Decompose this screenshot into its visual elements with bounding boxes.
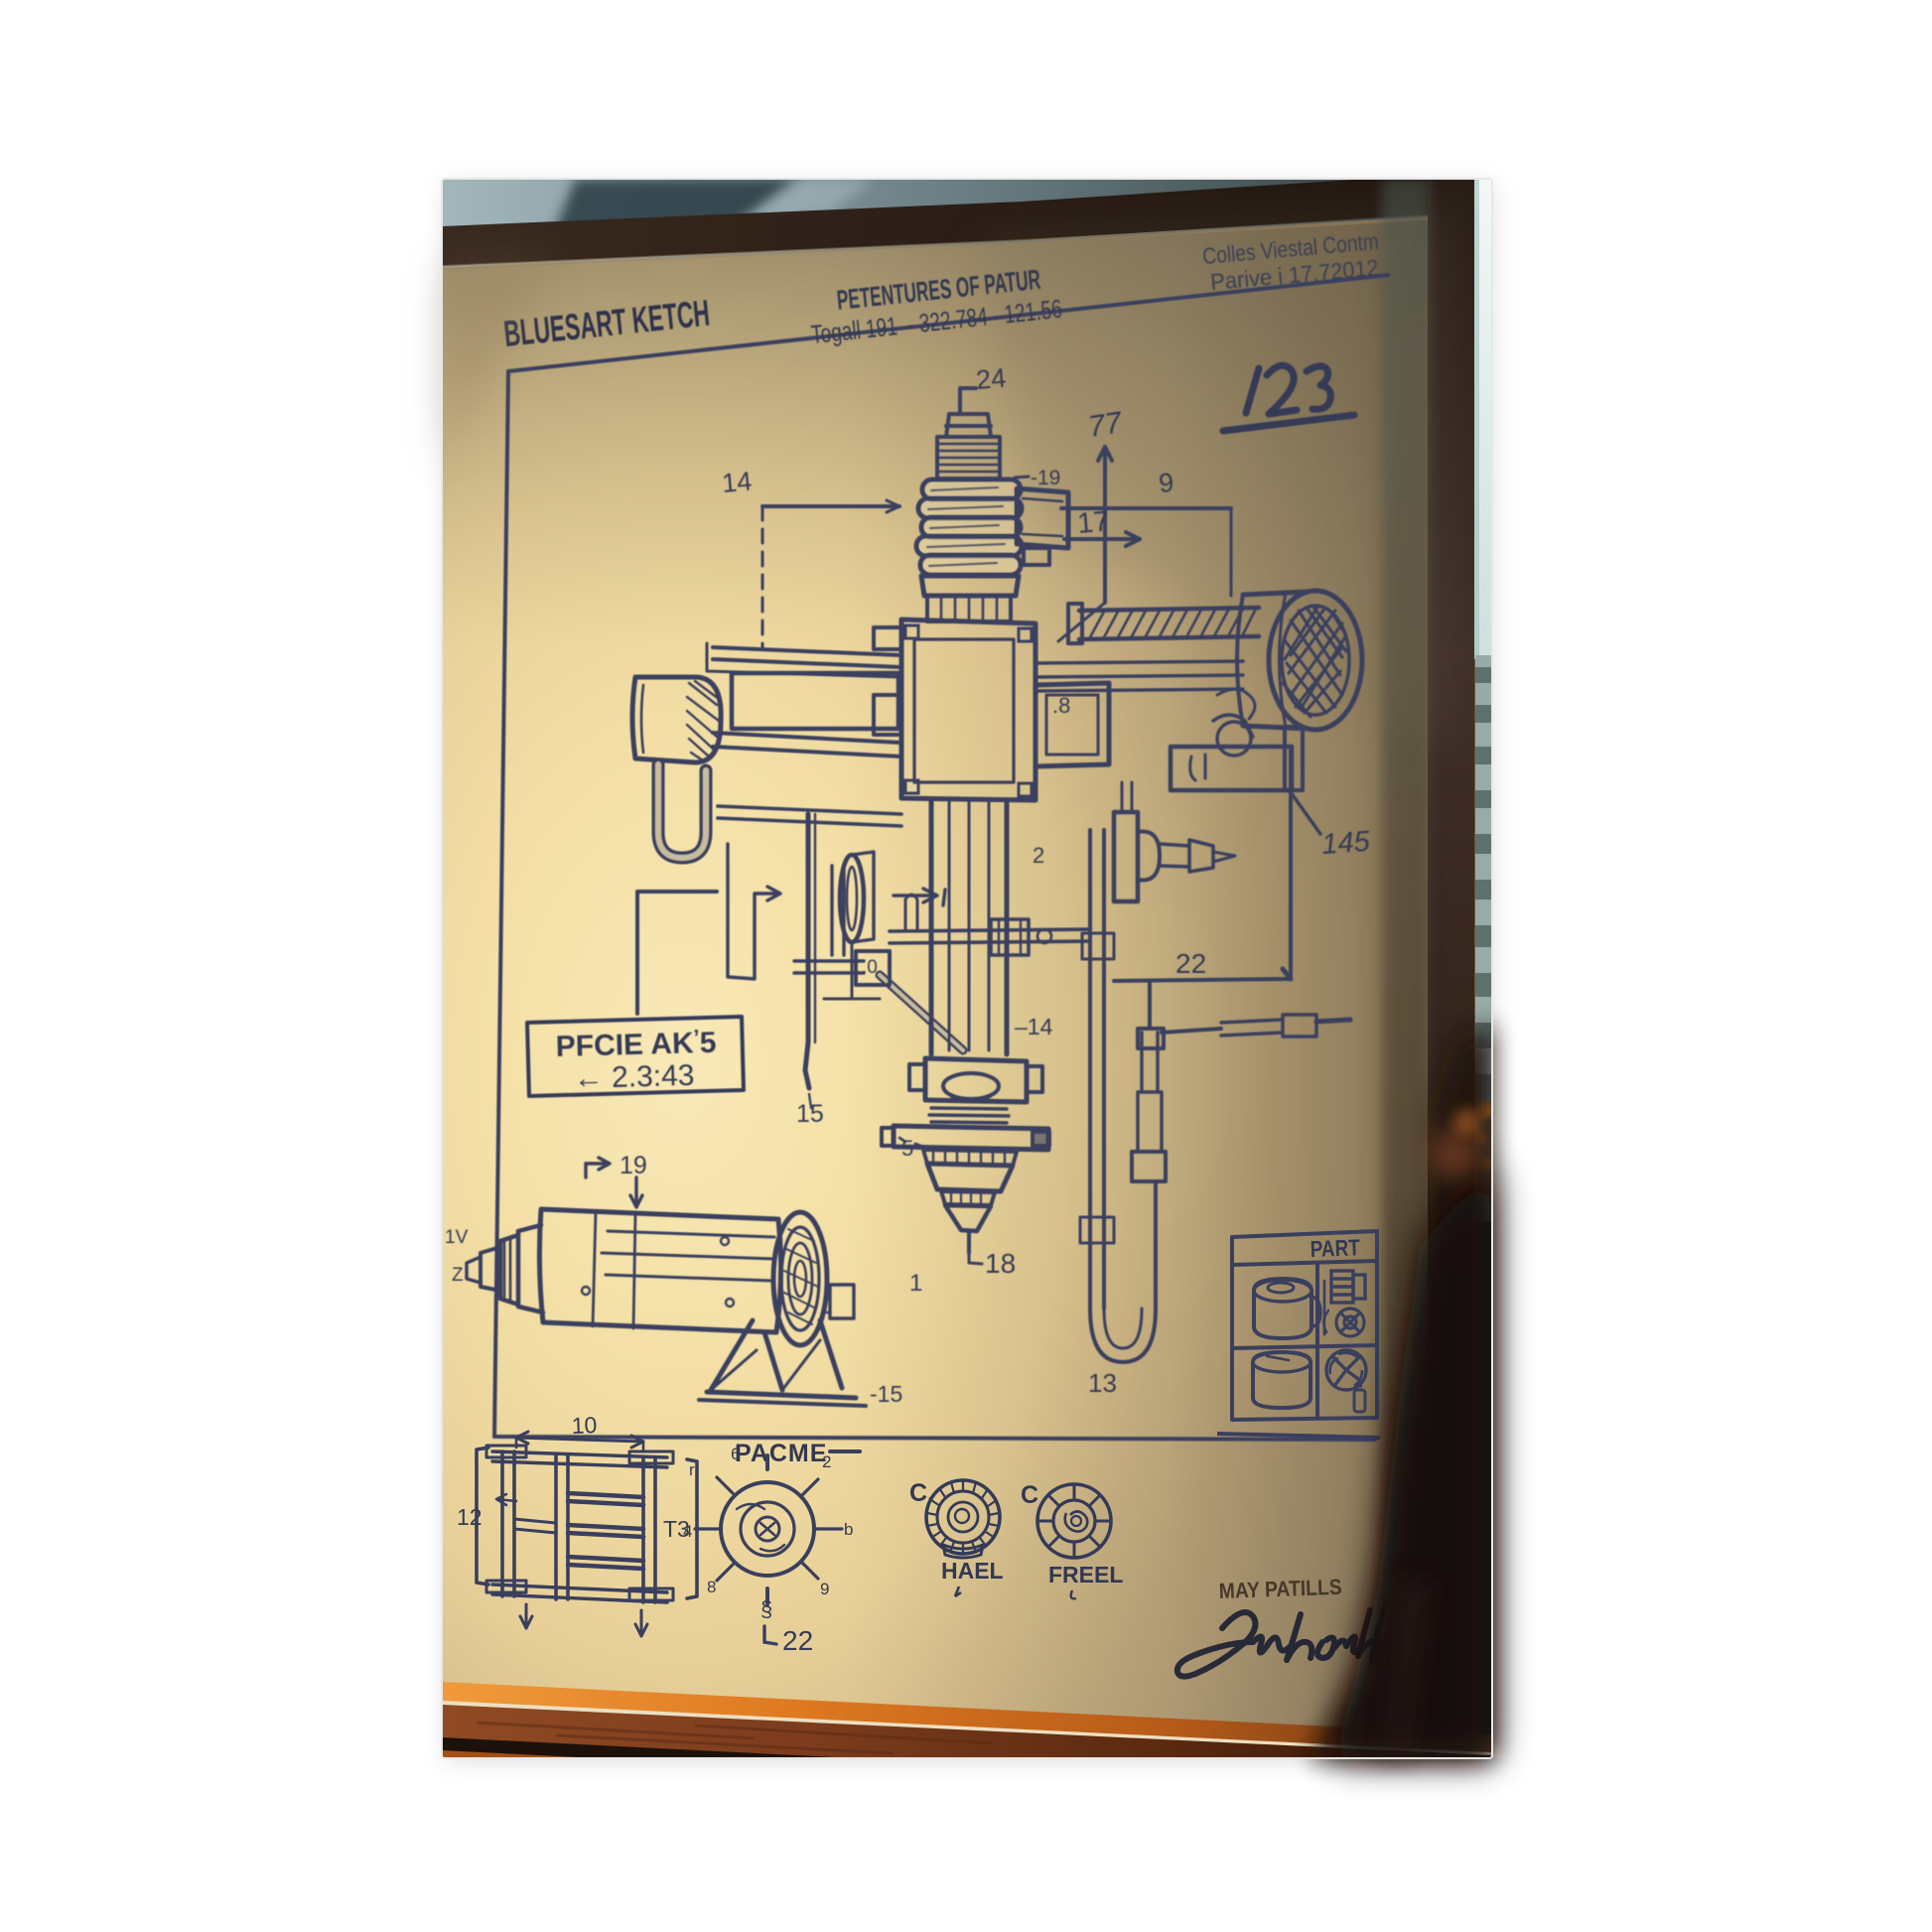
svg-text:8: 8 bbox=[707, 1578, 716, 1596]
svg-text:–14: –14 bbox=[1015, 1014, 1053, 1039]
svg-text:6: 6 bbox=[731, 1445, 740, 1463]
svg-text:9: 9 bbox=[820, 1580, 829, 1598]
svg-text:18: 18 bbox=[985, 1248, 1016, 1279]
svg-text:PFCIE AK’5: PFCIE AK’5 bbox=[555, 1025, 717, 1063]
svg-text:-19: -19 bbox=[1031, 467, 1060, 489]
svg-text:r: r bbox=[689, 1460, 695, 1479]
svg-text:12: 12 bbox=[457, 1504, 483, 1530]
svg-text:15: 15 bbox=[796, 1100, 824, 1128]
svg-text:14: 14 bbox=[721, 466, 754, 498]
svg-text:Z: Z bbox=[452, 1265, 464, 1286]
svg-text:PART: PART bbox=[1310, 1234, 1360, 1262]
svg-text:HAEL: HAEL bbox=[941, 1558, 1004, 1584]
svg-text:4: 4 bbox=[683, 1522, 692, 1541]
svg-text:5: 5 bbox=[901, 1136, 913, 1161]
svg-text:1V: 1V bbox=[445, 1227, 469, 1248]
svg-text:MAY PATILLS: MAY PATILLS bbox=[1218, 1575, 1342, 1603]
svg-text:13: 13 bbox=[1088, 1368, 1117, 1398]
svg-text:b: b bbox=[844, 1520, 853, 1539]
svg-text:2: 2 bbox=[1033, 843, 1044, 868]
svg-text:24: 24 bbox=[975, 362, 1008, 395]
svg-text:22: 22 bbox=[782, 1625, 813, 1656]
svg-text:9: 9 bbox=[1158, 468, 1175, 498]
svg-text:17: 17 bbox=[1076, 505, 1111, 540]
svg-text:145: 145 bbox=[1320, 826, 1371, 861]
svg-text:§: § bbox=[760, 1596, 772, 1621]
svg-text:C: C bbox=[1021, 1481, 1038, 1509]
svg-text:19: 19 bbox=[620, 1152, 647, 1179]
svg-text:2: 2 bbox=[822, 1452, 831, 1471]
svg-text:22: 22 bbox=[1175, 948, 1206, 979]
svg-text:1: 1 bbox=[909, 1270, 922, 1297]
svg-text:77: 77 bbox=[1086, 406, 1125, 444]
svg-text:10: 10 bbox=[571, 1412, 597, 1439]
svg-text:.8: .8 bbox=[1052, 693, 1070, 718]
svg-text:FREEL: FREEL bbox=[1048, 1562, 1123, 1587]
svg-text:← 2.3:43: ← 2.3:43 bbox=[573, 1059, 695, 1095]
svg-text:-15: -15 bbox=[870, 1381, 902, 1407]
svg-text:PACME: PACME bbox=[735, 1440, 827, 1467]
svg-text:.0: .0 bbox=[862, 957, 878, 978]
